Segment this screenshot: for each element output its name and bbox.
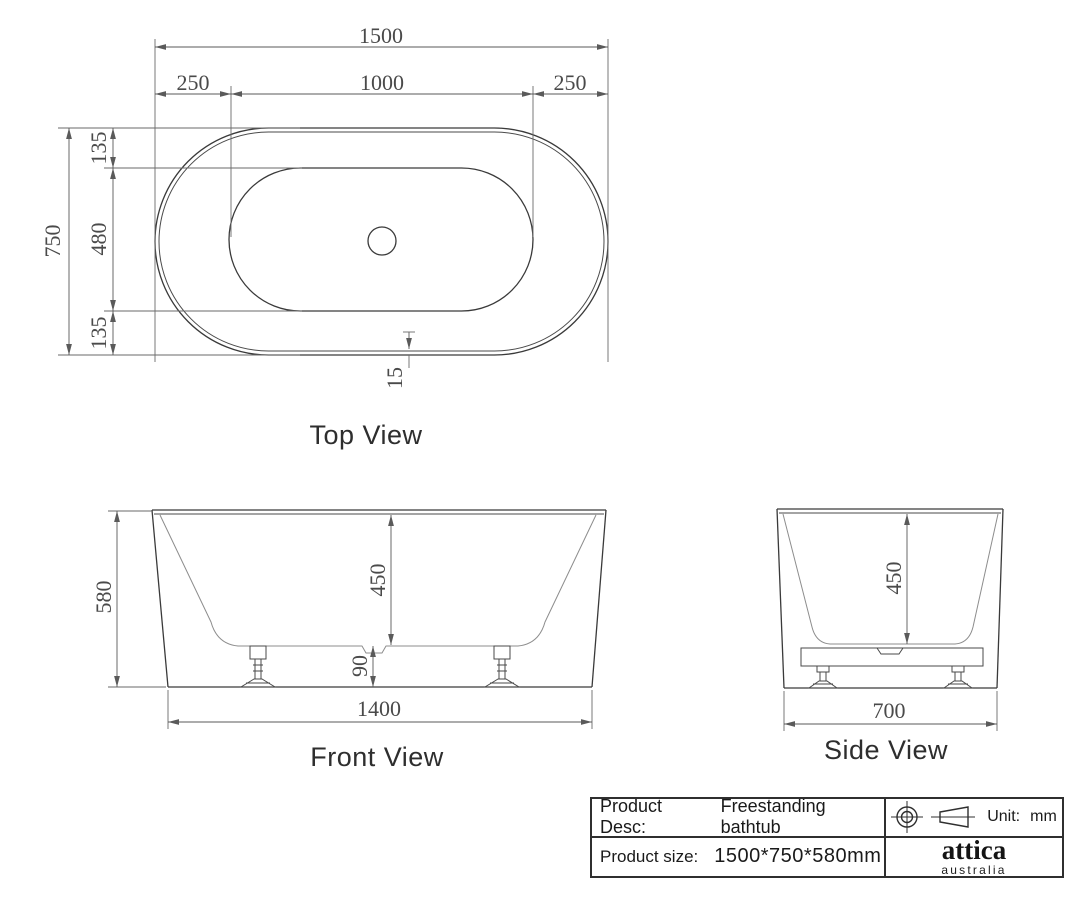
tub-basin-outline [229, 168, 533, 311]
dim-top-edge-135-bottom: 135 [86, 317, 111, 350]
drain-circle [368, 227, 396, 255]
title-block-desc-cell: Product Desc: Freestanding bathtub [592, 799, 886, 838]
tub-inner-rim-outline [159, 132, 604, 351]
product-size-label: Product size: [600, 847, 698, 867]
side-drain-recess [877, 648, 903, 654]
side-view-label: Side View [824, 735, 948, 765]
dim-top-overall-width: 1500 [359, 23, 403, 48]
brand-logo: attica australia [941, 838, 1006, 877]
dim-top-overall-depth: 750 [40, 225, 65, 258]
title-block-unit-cell: Unit: mm [886, 799, 1062, 838]
side-view: 450 700 Side View [777, 509, 1003, 765]
dim-side-depth-450: 450 [881, 562, 906, 595]
dim-front-gap-90: 90 [347, 655, 372, 677]
title-block: Product Desc: Freestanding bathtub Unit:… [590, 797, 1064, 878]
dim-top-center-1000: 1000 [360, 70, 404, 95]
dim-top-wall-15: 15 [382, 367, 407, 389]
top-view: 1500 250 1000 250 750 135 480 135 15 Top… [40, 23, 608, 450]
dim-side-base-700: 700 [873, 698, 906, 723]
dim-top-edge-135-top: 135 [86, 132, 111, 165]
side-right-foot [944, 666, 972, 688]
front-view-label: Front View [310, 742, 444, 772]
title-block-brand-cell: attica australia [886, 838, 1062, 877]
side-base-plate [801, 648, 983, 666]
drawing-linework: 1500 250 1000 250 750 135 480 135 15 Top… [0, 0, 1080, 898]
product-size-value: 1500*750*580mm [714, 845, 881, 868]
brand-subtitle: australia [941, 864, 1006, 876]
dim-front-base-1400: 1400 [357, 696, 401, 721]
front-right-foot [485, 646, 519, 687]
first-angle-projection-circle-icon [891, 801, 923, 833]
side-left-foot [809, 666, 837, 688]
dim-front-height-580: 580 [91, 581, 116, 614]
dim-top-left-250: 250 [177, 70, 210, 95]
dim-top-right-250: 250 [554, 70, 587, 95]
dim-top-basin-480: 480 [86, 223, 111, 256]
brand-name: attica [942, 838, 1006, 865]
technical-drawing-sheet: 1500 250 1000 250 750 135 480 135 15 Top… [0, 0, 1080, 898]
first-angle-projection-cone-icon [931, 805, 975, 829]
unit-value: mm [1030, 808, 1057, 826]
unit-label: Unit: [987, 808, 1020, 826]
front-left-foot [241, 646, 275, 687]
dim-front-depth-450: 450 [365, 564, 390, 597]
top-view-label: Top View [309, 420, 422, 450]
product-desc-value: Freestanding bathtub [721, 799, 884, 838]
tub-outer-rim-outline [155, 128, 608, 355]
product-desc-label: Product Desc: [600, 799, 709, 838]
front-view: 580 450 90 1400 Front View [91, 510, 606, 772]
title-block-size-cell: Product size: 1500*750*580mm [592, 838, 886, 877]
